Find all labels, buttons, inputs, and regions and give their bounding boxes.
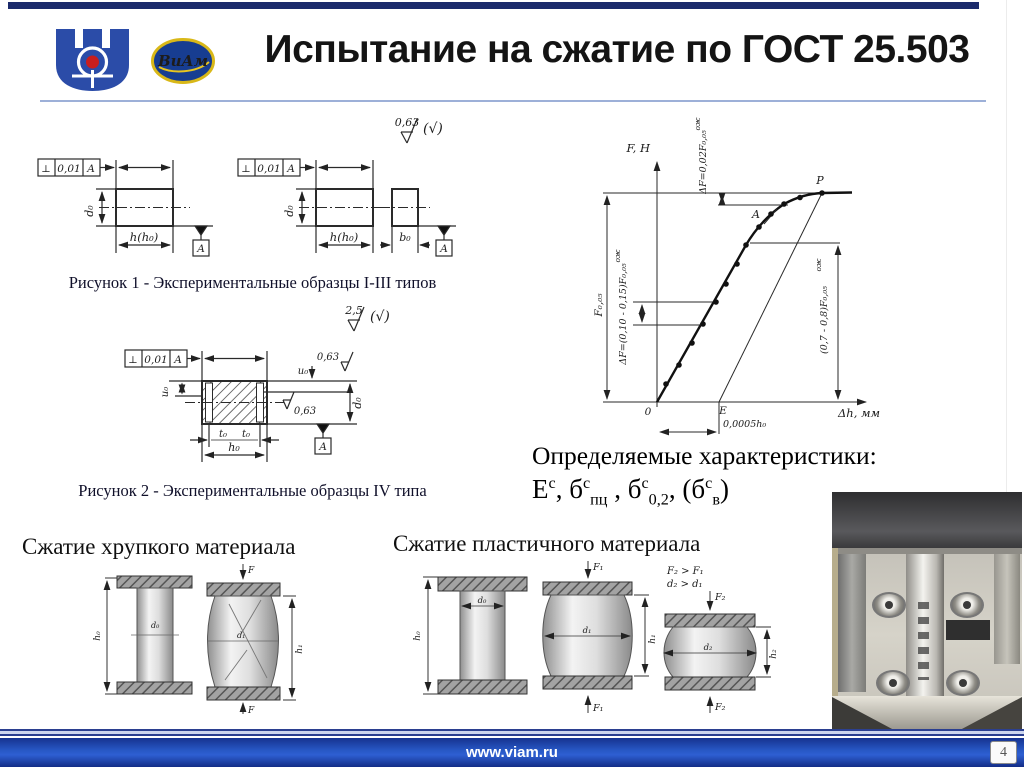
fig1-d0-label-2: d₀ (283, 205, 296, 217)
graph-y-axis-label: F, H (625, 141, 650, 155)
slide-title: Испытание на сжатие по ГОСТ 25.503 (232, 28, 1002, 72)
photo-specimen-marking (918, 602, 929, 680)
fig2-roughness-suffix: (√) (370, 309, 390, 325)
figure1-drawing: 0,63 (√) ⊥ 0,01 A d₀ h(h₀) A ⊥ 0,01 A d₀… (35, 112, 470, 272)
plastic-geometry (423, 561, 771, 713)
fig2-u0-left-label: u₀ (160, 387, 171, 397)
graph-delta-top-label: ΔF=0,02F₀,₀₅ (698, 130, 709, 195)
plastic-h0-label: h₀ (413, 631, 423, 641)
formula-term-base: б (691, 474, 705, 504)
photo-extensometer-knob (876, 670, 910, 696)
fig2-tolerance-datum: A (173, 354, 182, 366)
brittle-d1-label: d₁ (237, 631, 245, 640)
footer-url: www.viam.ru (466, 744, 558, 761)
formula-term-sub: 0,2 (649, 490, 669, 508)
formula-separator: ) (720, 474, 729, 504)
graph-delta-mid-sup: ож (613, 249, 622, 263)
fig1-roughness-suffix: (√) (423, 121, 443, 137)
test-machine-photo (832, 492, 1022, 730)
graph-origin-label: 0 (645, 406, 652, 418)
formula-separator: , ( (669, 474, 692, 504)
brittle-diagram: h₀ d₀ F d₁ F h₁ (95, 562, 310, 714)
load-deformation-graph: F, H Δh, мм 0 P A E 0,0005h₀ F₀,₀₅ ΔF=(0… (598, 112, 1018, 444)
fig1-b0-label: b₀ (399, 231, 411, 244)
photo-background-slot (946, 620, 990, 640)
footer-rule-bottom (0, 734, 1024, 736)
graph-right-label: (0,7 - 0,8)F₀,₀₅ (819, 286, 830, 354)
fig1-h-label: h(h₀) (130, 230, 158, 244)
fig1-tolerance-value-2: 0,01 (257, 163, 280, 175)
brittle-geometry (105, 564, 296, 714)
graph-delta-top-sup: ож (693, 117, 702, 131)
formula-term-sup: с (641, 474, 648, 492)
plastic-condition-2: d₂ > d₁ (667, 579, 703, 590)
plastic-heading: Сжатие пластичного материала (393, 531, 700, 557)
fig1-datum-letter: A (196, 243, 205, 255)
figure1-geometry (38, 119, 456, 256)
fig1-tolerance-symbol-2: ⊥ (241, 164, 250, 175)
plastic-h2-label: h₂ (769, 649, 779, 659)
fig1-tolerance-symbol: ⊥ (41, 164, 50, 175)
plastic-f1-top-label: F₁ (592, 562, 603, 573)
fig2-u0-top-label: u₀ (298, 366, 308, 377)
figure1-caption: Рисунок 1 - Экспериментальные образцы I-… (35, 273, 470, 293)
fig1-tolerance-datum-2: A (286, 163, 295, 175)
plastic-d2-label: d₂ (704, 643, 713, 653)
fig1-h-label-2: h(h₀) (330, 230, 358, 244)
formula-term-base: б (569, 474, 583, 504)
plastic-condition-1: F₂ > F₁ (666, 566, 704, 577)
formula-separator: , (556, 474, 570, 504)
fig2-r063-mid-label: 0,63 (294, 406, 316, 417)
plastic-diagram: h₀ d₀ F₁ d₁ F₁ h₁ F₂ > F₁ d₂ > d₁ F₂ d₂ … (415, 558, 815, 716)
plastic-f2-bottom-label: F₂ (714, 702, 726, 713)
plastic-f1-bottom-label: F₁ (592, 703, 603, 714)
viam-logo: ВиАм (150, 37, 216, 85)
formula-term-sub: пц (590, 490, 607, 508)
fig2-t0-left-label: t₀ (219, 429, 227, 440)
plastic-d0-label: d₀ (478, 596, 487, 606)
photo-upper-platen (832, 492, 1022, 548)
graph-x-axis-label: Δh, мм (837, 406, 880, 420)
slide: ВиАм Испытание на сжатие по ГОСТ 25.503 (0, 0, 1024, 767)
fig1-tolerance-value: 0,01 (57, 163, 80, 175)
plastic-d1-label: d₁ (583, 626, 592, 636)
fig1-tolerance-datum: A (86, 163, 95, 175)
brittle-d0-label: d₀ (151, 621, 160, 630)
graph-data-points (663, 190, 825, 387)
brittle-heading: Сжатие хрупкого материала (22, 534, 295, 560)
viam-logo-text: ВиАм (157, 52, 208, 70)
photo-right-column (994, 554, 1020, 664)
brittle-force-top-label: F (247, 566, 255, 576)
photo-left-column (838, 554, 866, 692)
fig1-roughness-value: 0,63 (395, 116, 420, 129)
fig2-tolerance-symbol: ⊥ (128, 355, 137, 366)
figure2-drawing: 2,5 (√) ⊥ 0,01 A u₀ u₀ 0,63 0,63 d₀ A t₀… (65, 300, 440, 480)
formula-term-base: E (532, 474, 549, 504)
fig2-d0-label: d₀ (351, 397, 364, 409)
formula-term-sup: с (549, 474, 556, 492)
brittle-h0-label: h₀ (93, 631, 103, 641)
page-number: 4 (990, 741, 1017, 764)
graph-delta-mid-label: ΔF=(0,10 - 0,15)F₀,₀₅ (618, 263, 629, 366)
fig2-t0-right-label: t₀ (242, 429, 250, 440)
fig1-datum-letter-2: A (439, 243, 448, 255)
fig2-h0-label: h₀ (228, 441, 240, 454)
formula-term-sub: в (712, 490, 720, 508)
graph-point-a: A (751, 208, 760, 221)
graph-point-e: E (718, 405, 727, 417)
title-divider (40, 100, 986, 102)
photo-extensometer-knob (950, 592, 984, 618)
graph-f005-label: F₀,₀₅ (593, 293, 605, 318)
fig2-datum-letter: A (318, 441, 327, 453)
fig2-r063-top-label: 0,63 (317, 352, 339, 363)
figure2-caption: Рисунок 2 - Экспериментальные образцы IV… (65, 481, 440, 501)
photo-extensometer-knob (946, 670, 980, 696)
kurchatov-logo (50, 27, 135, 93)
top-border-strip (8, 2, 979, 9)
fig2-tolerance-value: 0,01 (144, 354, 167, 366)
brittle-force-bottom-label: F (247, 706, 255, 716)
characteristics-heading: Определяемые характеристики: (532, 441, 1002, 471)
graph-right-sup: ож (814, 258, 823, 272)
graph-point-p: P (815, 174, 824, 187)
formula-separator: , (607, 474, 627, 504)
photo-extensometer-knob (872, 592, 906, 618)
formula-term-base: б (628, 474, 642, 504)
plastic-h1-label: h₁ (648, 634, 658, 643)
footer-bar: www.viam.ru (0, 738, 1024, 767)
plastic-f2-top-label: F₂ (714, 592, 726, 603)
graph-offset-label: 0,0005h₀ (723, 419, 766, 430)
fig2-roughness-value: 2,5 (344, 304, 363, 317)
brittle-h1-label: h₁ (295, 644, 305, 653)
photo-specimen-cylinder (906, 554, 944, 704)
fig1-d0-label: d₀ (83, 205, 96, 217)
